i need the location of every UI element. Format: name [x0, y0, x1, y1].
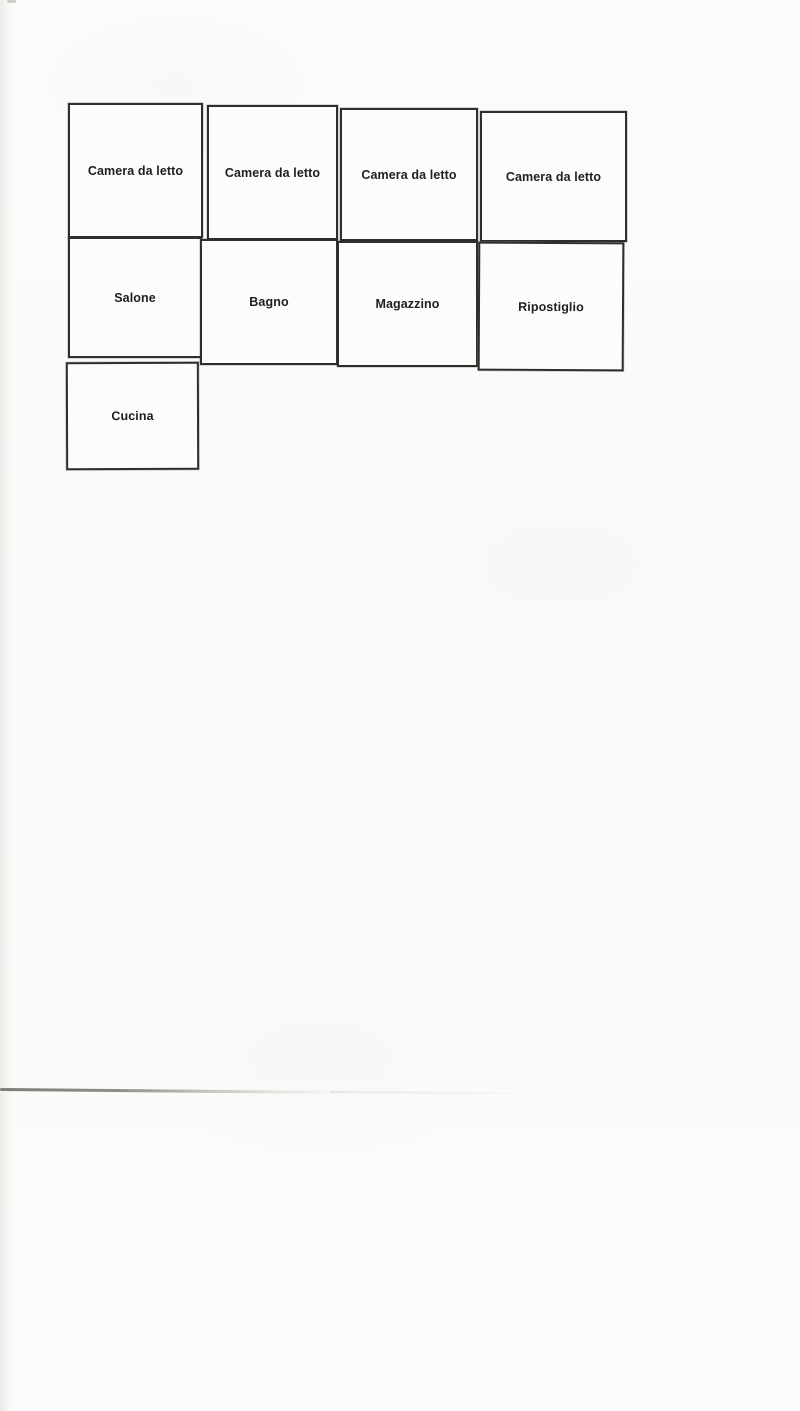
room-label-camera-da-letto-1: Camera da letto	[88, 164, 183, 178]
room-camera-da-letto-2: Camera da letto	[207, 105, 338, 240]
room-bagno: Bagno	[200, 239, 338, 365]
room-camera-da-letto-1: Camera da letto	[68, 103, 203, 238]
room-camera-da-letto-4: Camera da letto	[480, 111, 627, 242]
room-camera-da-letto-3: Camera da letto	[340, 108, 478, 241]
room-label-camera-da-letto-3: Camera da letto	[361, 168, 456, 182]
room-magazzino: Magazzino	[337, 241, 478, 367]
room-label-camera-da-letto-2: Camera da letto	[225, 166, 320, 180]
room-label-bagno: Bagno	[249, 295, 288, 309]
room-label-camera-da-letto-4: Camera da letto	[506, 170, 601, 184]
room-cucina: Cucina	[66, 362, 199, 470]
room-label-salone: Salone	[114, 291, 156, 305]
room-label-magazzino: Magazzino	[375, 297, 439, 311]
room-label-cucina: Cucina	[111, 409, 153, 423]
room-ripostiglio: Ripostiglio	[478, 242, 625, 372]
room-label-ripostiglio: Ripostiglio	[518, 299, 584, 313]
floor-plan: Camera da letto Camera da letto Camera d…	[0, 0, 800, 1411]
room-salone: Salone	[68, 237, 202, 358]
